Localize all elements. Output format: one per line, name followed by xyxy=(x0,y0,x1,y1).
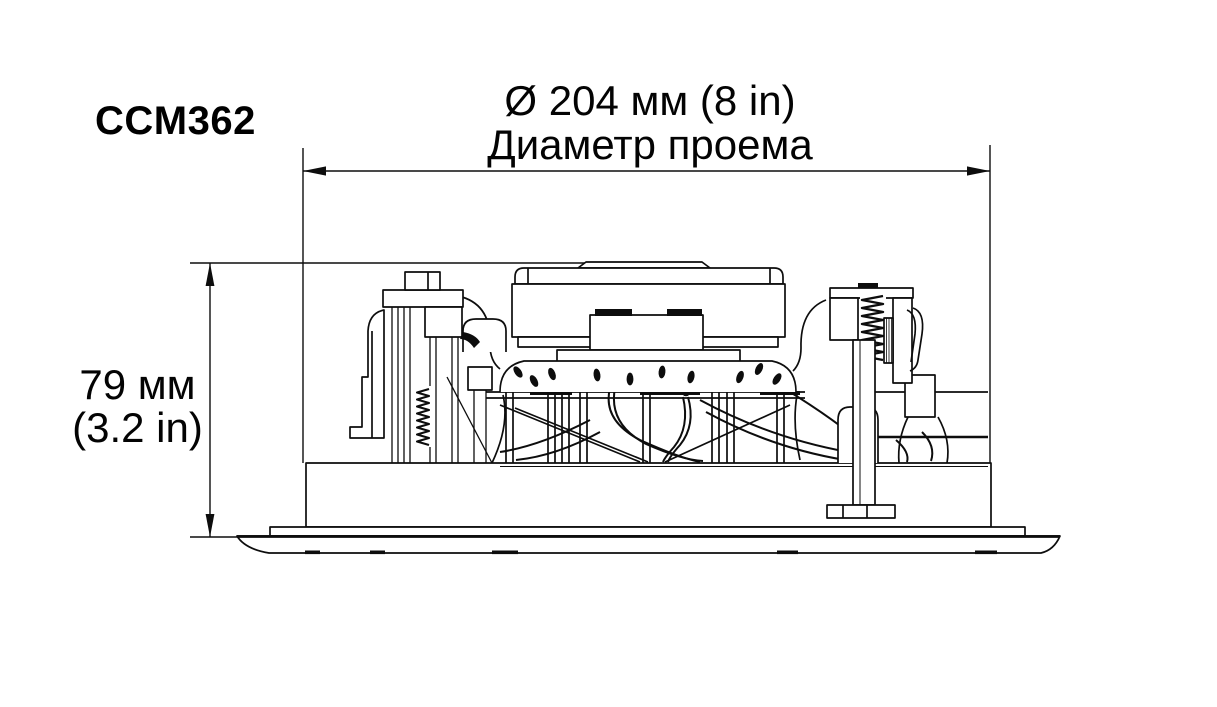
speaker-body xyxy=(237,463,1060,554)
magnet-top-cap xyxy=(578,262,710,268)
mounting-flange xyxy=(270,527,1025,536)
clamp-crossbar-left xyxy=(383,290,463,307)
clamp-foot-right xyxy=(827,505,895,518)
clamp-screw-shaft xyxy=(853,340,875,505)
cone-lines xyxy=(500,405,790,462)
clamp-cap-left xyxy=(405,272,440,290)
basket-wall-right xyxy=(793,300,826,371)
pole-piece xyxy=(590,315,703,350)
speaker-cross-section-drawing xyxy=(0,0,1217,707)
left-mounting-clamp xyxy=(350,272,506,463)
clamp-arm-left xyxy=(350,310,384,438)
arrowhead-down xyxy=(206,514,215,537)
technical-drawing-page: CCM362 Ø 204 мм (8 in) Диаметр проема 79… xyxy=(0,0,1217,707)
driver-magnet-assembly xyxy=(500,262,796,392)
arrowhead-left xyxy=(303,166,326,175)
arrowhead-right xyxy=(967,166,990,175)
trim-bezel xyxy=(237,536,1060,553)
arrowhead-up xyxy=(206,263,215,286)
basket-shoulder xyxy=(500,361,796,392)
